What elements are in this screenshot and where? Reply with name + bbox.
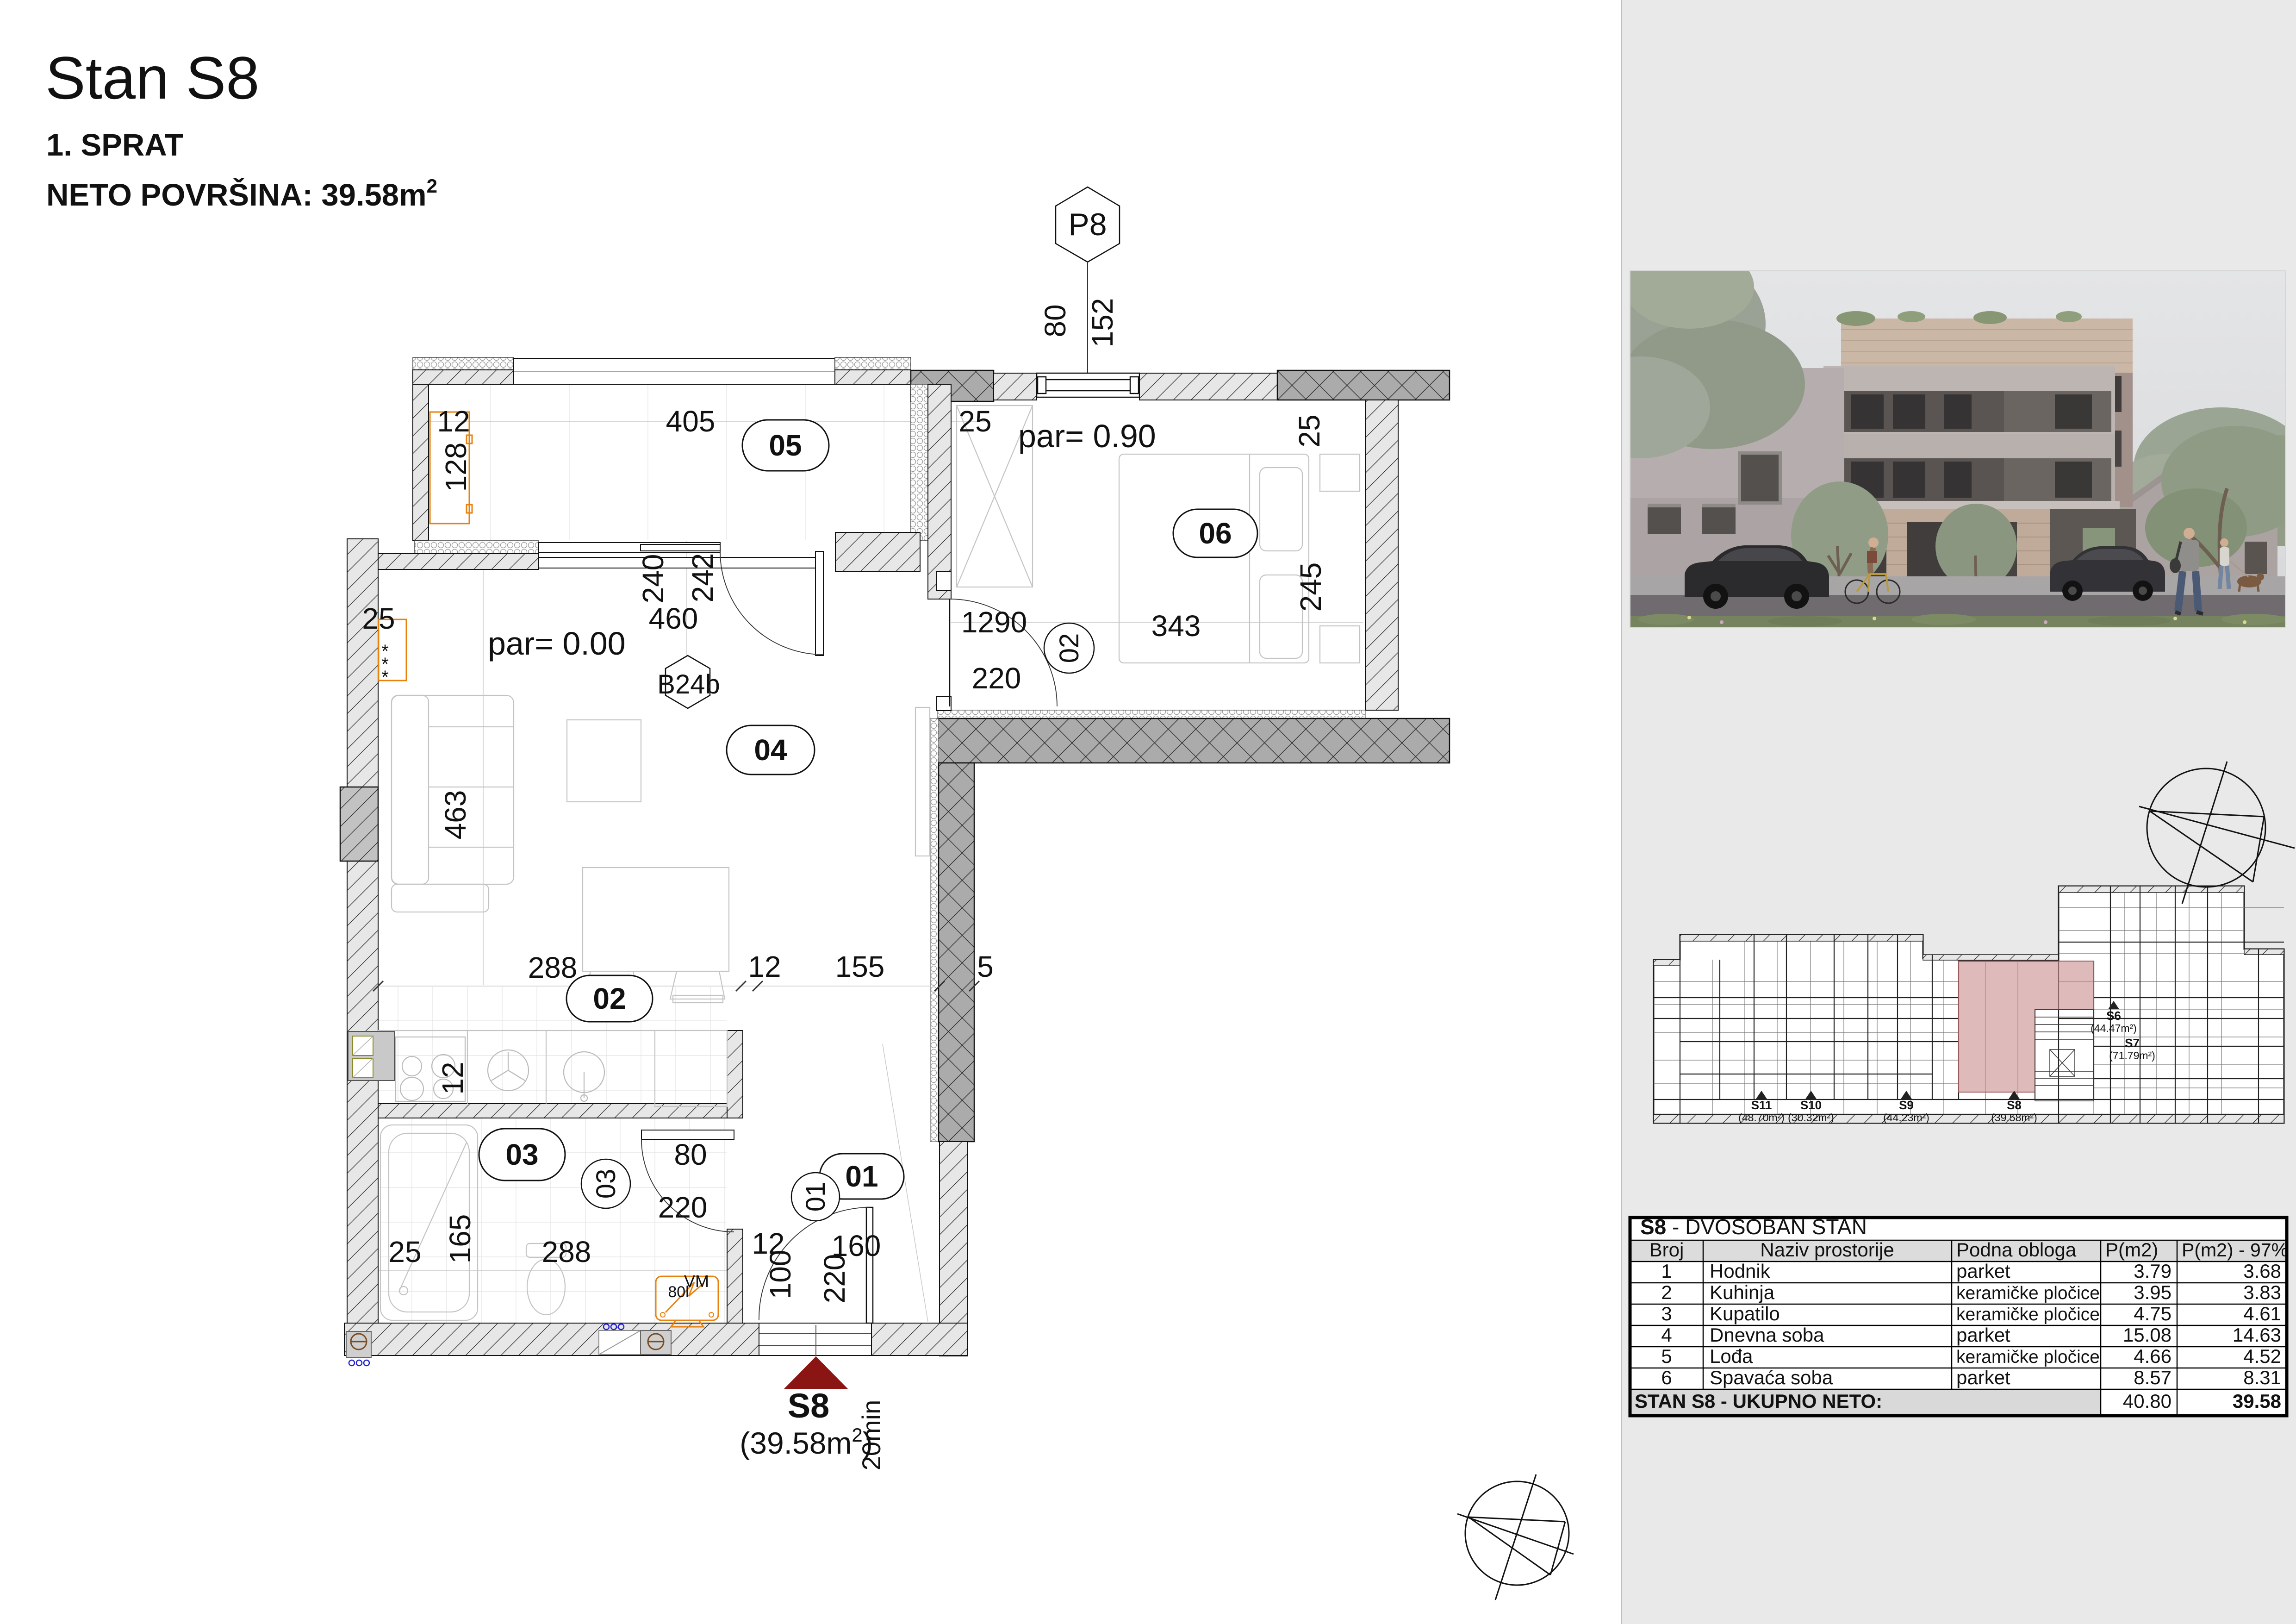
svg-text:165: 165 [443, 1214, 477, 1264]
svg-text:Dnevna soba: Dnevna soba [1710, 1324, 1824, 1346]
svg-text:12: 12 [437, 405, 470, 438]
svg-text:3.95: 3.95 [2134, 1281, 2172, 1303]
svg-text:25: 25 [958, 405, 991, 438]
svg-text:03: 03 [505, 1138, 538, 1171]
svg-text:4: 4 [1661, 1324, 1672, 1346]
svg-text:15.08: 15.08 [2123, 1324, 2172, 1346]
svg-text:4.66: 4.66 [2134, 1345, 2172, 1367]
svg-text:NETO POVRŠINA: 39.58m2: NETO POVRŠINA: 39.58m2 [46, 175, 437, 212]
svg-text:20min: 20min [857, 1400, 886, 1471]
svg-text:155: 155 [835, 950, 885, 983]
svg-text:12: 12 [748, 950, 781, 983]
svg-text:405: 405 [666, 405, 716, 438]
svg-text:STAN S8 - UKUPNO NETO:: STAN S8 - UKUPNO NETO: [1635, 1390, 1882, 1412]
svg-text:S8: S8 [788, 1387, 830, 1425]
svg-text:343: 343 [1151, 609, 1201, 643]
svg-text:S8: S8 [2007, 1098, 2022, 1112]
svg-text:220: 220 [658, 1191, 708, 1224]
svg-text:3.68: 3.68 [2243, 1260, 2281, 1282]
svg-text:25: 25 [1293, 414, 1326, 447]
svg-text:S6: S6 [2106, 1009, 2121, 1023]
svg-text:(44.23m²): (44.23m²) [1883, 1112, 1929, 1124]
svg-text:8.57: 8.57 [2134, 1367, 2172, 1388]
svg-text:1290: 1290 [961, 606, 1027, 639]
svg-text:128: 128 [439, 443, 473, 492]
svg-text:par= 0.00: par= 0.00 [488, 625, 626, 662]
svg-text:14.63: 14.63 [2233, 1324, 2281, 1346]
svg-text:S10: S10 [1800, 1098, 1822, 1112]
svg-text:(71.79m²): (71.79m²) [2109, 1049, 2155, 1062]
svg-text:Kupatilo: Kupatilo [1710, 1303, 1780, 1324]
svg-text:S11: S11 [1751, 1098, 1772, 1112]
svg-text:25: 25 [362, 602, 395, 635]
svg-text:220: 220 [972, 662, 1021, 695]
svg-text:288: 288 [542, 1235, 591, 1268]
svg-text:463: 463 [439, 790, 472, 840]
svg-text:(39.58m²): (39.58m²) [1991, 1112, 2037, 1124]
svg-text:80: 80 [1039, 304, 1072, 337]
svg-text:5: 5 [1661, 1345, 1672, 1367]
svg-text:(48.70m²): (48.70m²) [1738, 1112, 1785, 1124]
svg-text:Kuhinja: Kuhinja [1710, 1281, 1775, 1303]
svg-text:S7: S7 [2125, 1036, 2140, 1050]
svg-text:288: 288 [528, 951, 578, 984]
svg-text:Lođa: Lođa [1710, 1345, 1753, 1367]
svg-text:P8: P8 [1068, 207, 1107, 242]
svg-text:P(m2) - 97%: P(m2) - 97% [2182, 1239, 2288, 1261]
svg-text:1: 1 [1661, 1260, 1672, 1282]
svg-text:12: 12 [436, 1062, 469, 1094]
svg-text:par= 0.90: par= 0.90 [1018, 418, 1156, 454]
svg-text:4.52: 4.52 [2243, 1345, 2281, 1367]
svg-text:3.83: 3.83 [2243, 1281, 2281, 1303]
svg-text:245: 245 [1294, 562, 1327, 612]
svg-text:03: 03 [591, 1169, 621, 1199]
svg-text:keramičke pločice: keramičke pločice [1956, 1347, 2100, 1367]
svg-text:02: 02 [593, 982, 626, 1015]
svg-text:keramičke pločice: keramičke pločice [1956, 1283, 2100, 1303]
svg-text:1. SPRAT: 1. SPRAT [46, 128, 184, 162]
svg-text:*: * [381, 667, 389, 687]
svg-text:460: 460 [649, 602, 698, 635]
svg-text:parket: parket [1956, 1324, 2010, 1346]
svg-text:80: 80 [674, 1138, 707, 1171]
svg-text:S9: S9 [1899, 1098, 1914, 1112]
svg-text:02: 02 [1054, 633, 1084, 663]
svg-text:220: 220 [818, 1254, 851, 1304]
svg-text:(30.32m²): (30.32m²) [1788, 1112, 1834, 1124]
svg-text:2: 2 [1661, 1281, 1672, 1303]
svg-text:Podna obloga: Podna obloga [1956, 1239, 2077, 1261]
svg-text:39.58: 39.58 [2233, 1390, 2281, 1412]
svg-text:keramičke pločice: keramičke pločice [1956, 1305, 2100, 1324]
svg-text:P(m2): P(m2) [2105, 1239, 2158, 1261]
svg-text:152: 152 [1086, 298, 1119, 348]
svg-text:parket: parket [1956, 1367, 2010, 1388]
svg-text:Hodnik: Hodnik [1710, 1260, 1771, 1282]
svg-text:8.31: 8.31 [2243, 1367, 2281, 1388]
svg-text:Spavaća soba: Spavaća soba [1710, 1367, 1833, 1388]
svg-text:06: 06 [1199, 517, 1232, 550]
svg-text:4.75: 4.75 [2134, 1303, 2172, 1324]
svg-text:40.80: 40.80 [2123, 1390, 2172, 1412]
svg-text:01: 01 [801, 1182, 831, 1212]
svg-text:100: 100 [764, 1250, 797, 1299]
svg-text:242: 242 [686, 553, 719, 603]
svg-text:80l: 80l [668, 1283, 689, 1301]
svg-text:B24b: B24b [657, 669, 720, 700]
svg-text:Broj: Broj [1649, 1239, 1684, 1261]
svg-text:3: 3 [1661, 1303, 1672, 1324]
svg-text:25: 25 [388, 1235, 421, 1268]
svg-text:01: 01 [845, 1160, 878, 1193]
svg-text:(44.47m²): (44.47m²) [2091, 1022, 2137, 1034]
svg-text:parket: parket [1956, 1260, 2010, 1282]
svg-text:Naziv prostorije: Naziv prostorije [1760, 1239, 1894, 1261]
svg-text:Stan S8: Stan S8 [45, 44, 260, 112]
svg-text:3.79: 3.79 [2134, 1260, 2172, 1282]
svg-text:5: 5 [977, 950, 994, 983]
svg-text:05: 05 [769, 429, 802, 462]
svg-text:6: 6 [1661, 1367, 1672, 1388]
svg-text:240: 240 [636, 554, 670, 604]
svg-text:04: 04 [754, 733, 787, 767]
svg-text:4.61: 4.61 [2243, 1303, 2281, 1324]
